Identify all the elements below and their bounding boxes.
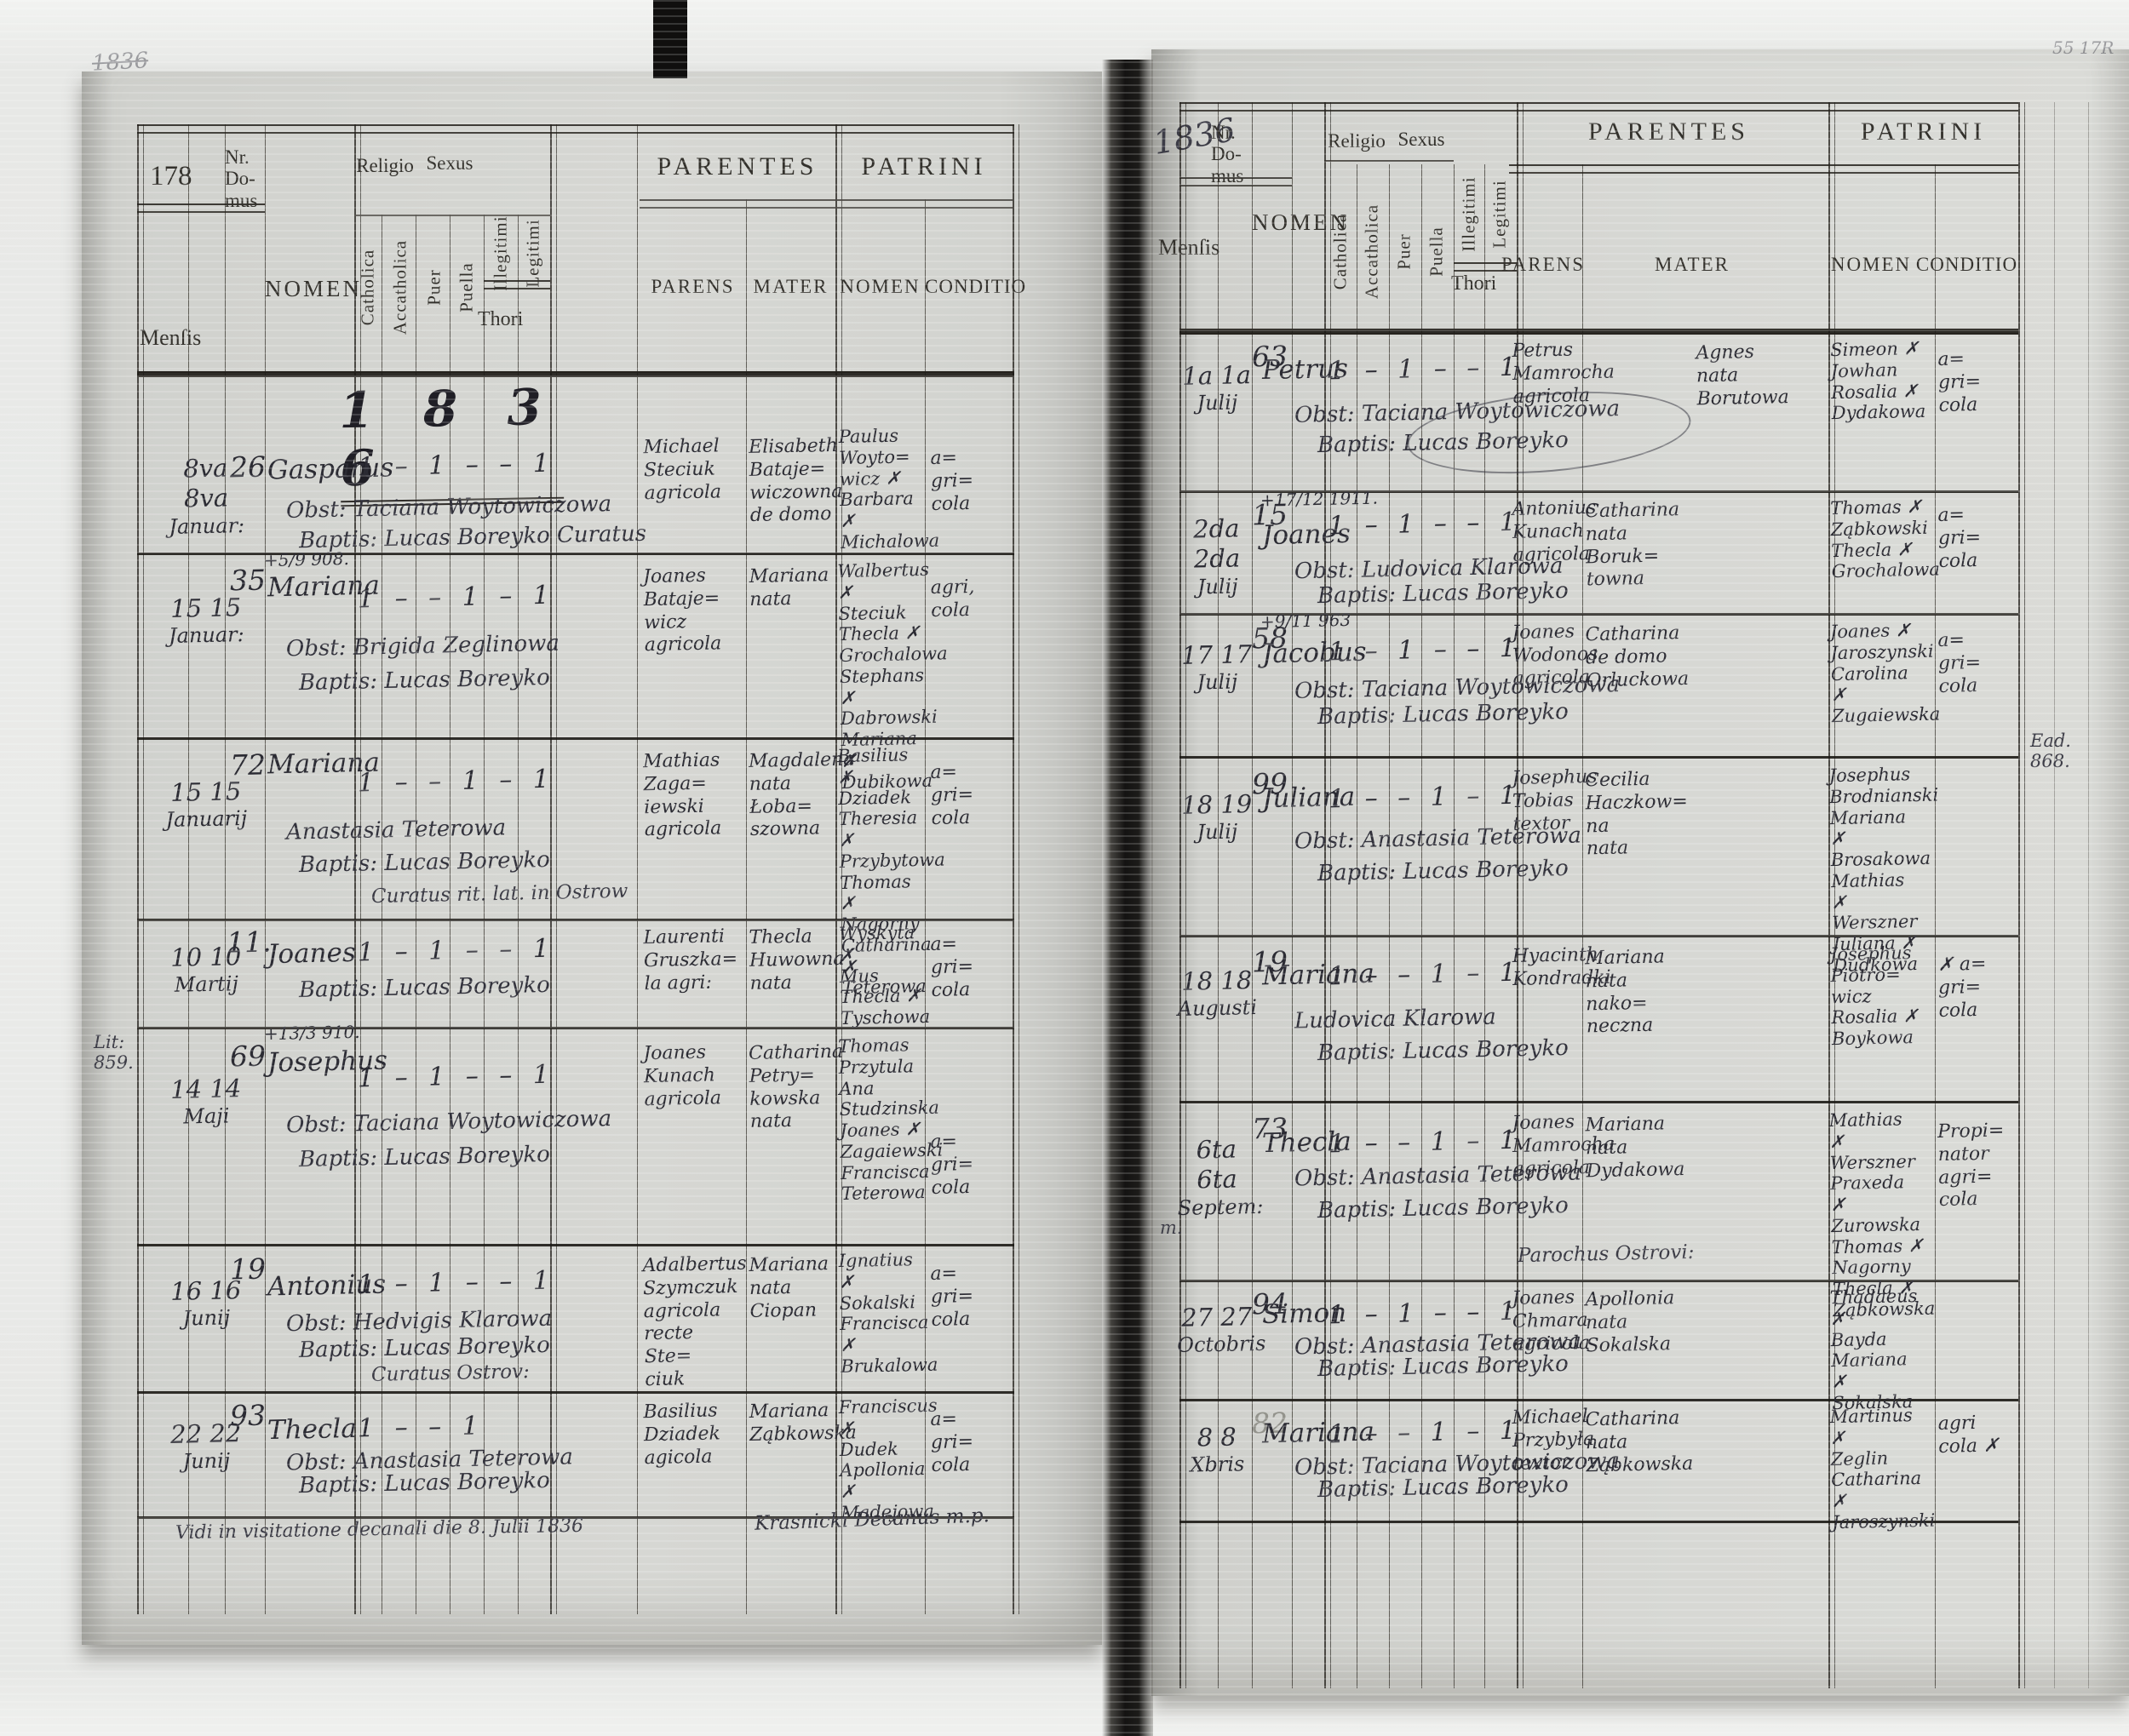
name-annotation: +5/9 908. [264,548,349,570]
conditio-cell: a= gri= cola [1937,347,2017,417]
entry-month: Xbris [1177,1452,1258,1478]
right-page: 1836 55 17R Nr. Do- [1151,49,2129,1696]
entry-month: Julij [1177,670,1258,696]
col-header-puer: Puer [1394,188,1415,316]
rule-line [1179,102,2018,112]
visitation-note: Vidi in visitatione decanali die 8. Juli… [175,1515,583,1544]
page-number: 178 [150,161,192,192]
entry-month: Januarij [158,806,255,834]
entry-day: 14 14 [158,1074,254,1106]
baptizans-line: Baptis: Lucas Boreyko [1317,1472,1569,1504]
rule-line [354,215,550,216]
obstetrix-line: Obst: Brigida Zeglinowa [286,631,560,663]
entry-date: 17 17Julij [1176,639,1257,696]
tally-marks: 1 – – 1 – 1 [358,765,554,799]
table-row: 8 8Xbris 82 Mariana Obst: Taciana Woytow… [1151,1401,2129,1522]
entry-date: 18 18Augusti [1176,965,1257,1023]
entry-month: Junij [158,1448,255,1475]
obstetrix-line: Obst: Taciana Woytowiczowa [286,1106,612,1140]
godparents-cell: Paulus Woyto= wicz ✗ Barbara ✗ Michalowa [838,425,926,553]
entry-day: 6ta 6ta [1176,1134,1257,1196]
obstetrix-line: Obst: Taciana Woytowiczowa [286,491,612,525]
entry-day: 18 19 [1176,789,1257,821]
conditio-cell: a= gri= cola [930,1130,1012,1200]
col-header-puella: Puella [1426,188,1448,316]
mother-cell: Elisabeth Bataje= wiczowna de domo [749,435,835,528]
col-header-accatholica: Accatholica [1362,188,1383,316]
table-row: 17 17Julij 58 +9/11 963 Jacobus Obst: Ta… [1151,615,2129,758]
godparents-cell: Thadaeus ✗ Bayda Mariana ✗ Sokalska [1829,1285,1925,1413]
conditio-cell: agri cola ✗ [1937,1412,2017,1459]
entry-month: Septem: [1177,1195,1258,1221]
table-row: 15 15Januarij 72 Mariana Anastasia Teter… [82,737,1102,919]
entry-month: Maji [158,1103,255,1131]
house-number: 72 [227,748,270,782]
baptizans-line: Baptis: Lucas Boreyko [1317,578,1569,610]
left-page: 1836 178 Nr. Do- mus Menſ [82,72,1102,1645]
baptizans-line: Baptis: Lucas Boreyko [299,847,550,879]
baptizans-line: Baptis: Lucas Boreyko [1317,856,1569,888]
father-cell: Antonius Kunach agricola [1512,497,1592,567]
table-row: 2da 2daJulij 15 +17/12 1911. Joanes Obst… [1151,492,2129,615]
col-header-patrini: PATRINI [1828,117,2018,146]
tally-marks: 1 – – 1 [358,1410,554,1445]
entry-date: 15 15Januarij [158,776,254,834]
obstetrix-line: Ludovica Klarowa [1294,1004,1496,1035]
entry-month: Octobris [1177,1332,1258,1359]
col-header-puella: Puella [456,224,478,352]
entry-date: 15 15Januar: [158,593,254,650]
house-number: 11. [227,925,270,960]
table-row: 18 18Augusti 19 Mariana Ludovica Klarowa… [1151,937,2129,1103]
mother-cell: Catharina nata Boruk= towna [1585,498,1697,592]
table-row: 16 16Junij 19 Antonius Obst: Hedvigis Kl… [82,1244,1102,1391]
tally-marks: 1 – 1 – – 1 [358,1059,554,1094]
godparents-cell: Joanes ✗ Jaroszynski Carolina ✗ Zugaiews… [1830,620,1926,727]
mother-cell: Agnes nata Borutowa [1696,341,1808,411]
entry-month: Augusti [1177,995,1258,1022]
conditio-cell: a= gri= cola [930,446,1012,516]
col-header-parentes: PARENTES [1509,117,1828,146]
register-scan: 1836 178 Nr. Do- mus Menſ [0,0,2129,1736]
father-cell: Hyacinth Kondradki [1512,944,1591,992]
tally-marks: 1 – 1 – – 1 [1328,633,1518,667]
col-header-puer: Puer [424,224,445,352]
baptizans-line: Baptis: Lucas Boreyko [299,972,550,1005]
tally-marks: 1 – 1 – – 1 [1328,507,1518,542]
father-cell: Michael Steciuk agricola [643,435,743,506]
entry-day: 8 8 [1176,1422,1257,1453]
table-row: 8va 8vaJanuar: 26 Gasparus Obst: Taciana… [82,376,1102,553]
tally-marks: 1 – 1 – – 1 [358,934,554,969]
col-header-nomen: NOMEN [1252,209,1330,236]
entry-day: 2da 2da [1176,513,1257,576]
entry-date: 14 14Maji [158,1074,254,1131]
baptizans-line: Baptis: Lucas Boreyko [1317,1035,1569,1068]
tally-marks: 1 – – 1 – 1 [1328,1126,1518,1160]
godparents-cell: Martinus ✗ Zeglin Catharina ✗ Jaroszynsk… [1829,1405,1925,1533]
baptizans-line: Baptis: Lucas Boreyko [1317,427,1569,460]
mother-cell: Mariana Ząbkowska [749,1399,835,1447]
table-row: 22 22Junij 93 Thecla Obst: Anastasia Tet… [82,1391,1102,1519]
godparents-cell: Franciscus ✗ Dudek Apollonia ✗ Madejowa [838,1395,926,1524]
tally-marks: 1 – – 1 – 1 [1328,781,1518,816]
godparents-cell: Wyskyta ✗ Mus Thecla ✗ Tyschowa [839,922,927,1029]
entry-month: Julij [1177,819,1258,845]
col-header-thori: Thori [1451,272,1496,295]
col-header-catholica: Catholica [358,224,379,352]
mother-cell: Catharina de domo Orluckowa [1585,622,1697,693]
col-header-sexus: Sexus [407,152,492,175]
tally-marks: 1 – 1 – – 1 [358,449,554,484]
tally-marks: 1 – 1 – – 1 [1328,352,1518,387]
conditio-cell: a= gri= cola [930,1263,1012,1332]
entry-date: 1a 1aJulij [1176,360,1257,417]
conditio-cell: Propi= nator agri= cola [1937,1120,2017,1212]
mother-cell: Apollonia nata Sokalska [1585,1287,1697,1358]
mother-cell: Catharina Petry= kowska nata [749,1041,835,1134]
baptizans-line-2: Curatus rit. lat. in Ostrow [371,879,628,908]
godparents-cell: Josephus Piotro= wicz Rosalia ✗ Boykowa [1830,942,1926,1050]
table-row: 1a 1aJulij 63 Petrus Obst: Taciana Woyto… [1151,332,2129,492]
entry-date: 6ta 6taSeptem: [1176,1134,1258,1221]
baptizans-line: Baptis: Lucas Boreyko [1317,699,1569,731]
entry-month: Januar: [158,622,255,650]
house-number: 35 [227,563,270,598]
entry-day: 18 18 [1176,965,1257,997]
house-number: 69 [227,1040,270,1074]
house-number: 19 [227,1252,270,1287]
corner-scribble: 55 17R [2052,37,2114,58]
godparents-cell: Thomas Przytula Ana Studzinska Joanes ✗ … [838,1034,927,1205]
entry-month: Julij [1177,574,1258,600]
table-row: 15 15Januar: 35 +5/9 908. Mariana Obst: … [82,553,1102,737]
table-row: 6ta 6taSeptem: 73 Thecla Obst: Anastasia… [1151,1103,2129,1281]
tally-marks: 1 – 1 – – 1 [1328,1296,1518,1331]
col-header-illegitimi: Illegitimi [491,190,512,318]
godparents-cell: Simeon ✗ Jowhan Rosalia ✗ Dydakowa [1830,337,1925,423]
col-header-patrini-nomen: NOMEN [1824,254,1918,276]
rule-line [1509,164,2018,174]
col-header-parens: PARENS [1496,254,1590,276]
book-gutter-shadow [1102,60,1153,1736]
tally-marks: 1 – – 1 – 1 [1328,1416,1518,1451]
conditio-cell: a= gri= cola [930,932,1012,1002]
col-header-mater: MATER [1641,254,1743,276]
conditio-cell: a= gri= cola [1937,628,2017,698]
conditio-cell: ✗ a= gri= cola [1937,953,2017,1023]
rule-line [1324,160,1454,162]
mother-cell: Magdalena nata Łoba= szowna [749,749,835,842]
col-header-patrini-nomen: NOMEN [835,276,925,298]
tally-marks: 1 – 1 – – 1 [358,1265,554,1300]
father-cell: Joanes Mamrocha agricola [1512,1111,1592,1181]
mother-cell: Mariana nata nako= neczna [1585,945,1697,1039]
father-cell: Mathias Zaga= iewski agricola [643,749,743,843]
mother-cell: Mariana nata [749,564,835,612]
col-header-accatholica: Accatholica [390,224,411,352]
baptism-name: Joanes [267,937,357,971]
mother-cell: Cecilia Haczkow= na nata [1585,767,1697,861]
col-header-patrini: PATRINI [835,152,1013,181]
col-header-sexus: Sexus [1379,129,1464,151]
col-header-thori: Thori [478,308,523,331]
mother-cell: Mariana nata Ciopan [749,1253,835,1324]
col-header-nr-domus: Nr. Do- mus [1211,122,1243,186]
col-header-illegitimi: Illegitimi [1459,151,1480,278]
col-header-legitimi: Legitimi [523,190,544,318]
entry-month: Julij [1177,390,1258,416]
baptizans-line: Baptis: Lucas Boreyko Curatus [299,521,647,555]
rule-line [137,124,1014,134]
conditio-cell: a= gri= cola [930,760,1012,830]
tally-marks: 1 – – 1 – 1 [358,580,554,615]
house-number: 26 [227,450,270,484]
table-row: 10 10Martij 11. Joanes Baptis: Lucas Bor… [82,919,1102,1027]
father-cell: Basilius Dziadek agicola [643,1399,743,1470]
mother-cell: Catharina nata Ząbkowska [1585,1407,1697,1477]
baptizans-line: Baptis: Lucas Boreyko [299,1468,550,1500]
col-header-conditio: CONDITIO [925,276,1013,298]
father-cell: Josephus Tobias textor [1512,766,1592,836]
name-annotation: +9/11 963 [1260,610,1351,633]
conditio-cell: agri, cola [930,576,1011,623]
baptizans-line-2: Parochus Ostrovi: [1518,1240,1695,1268]
col-header-mensis: Menſis [1158,235,1219,261]
father-cell: Laurenti Gruszka= la agri: [643,925,743,996]
entry-date: 8 8Xbris [1176,1422,1257,1479]
father-cell: Michael Przybyła textor [1512,1406,1592,1475]
col-header-nr-domus: Nr. Do- mus [225,146,257,211]
table-row: 18 19Julij 99 Juliana Obst: Anastasia Te… [1151,758,2129,937]
col-header-conditio: CONDITIO [1914,254,2020,276]
father-cell: Petrus Mamrocha agricola [1512,339,1592,409]
col-header-catholica: Catholica [1330,188,1351,316]
col-header-parentes: PARENTES [640,152,835,181]
entry-month: Martij [158,971,255,999]
baptizans-line-2: Curatus Ostrov: [371,1360,530,1387]
baptizans-line: Baptis: Lucas Boreyko [1317,1193,1569,1225]
col-header-mater: MATER [746,276,835,298]
godparents-cell: Thomas ✗ Ząbkowski Thecla ✗ Grochalowa [1830,496,1925,582]
father-cell: Joanes Kunach agricola [643,1041,743,1112]
col-header-nomen: NOMEN [265,276,354,302]
entry-day: 17 17 [1176,639,1257,671]
col-header-mensis: Menſis [140,325,201,351]
top-scribble: 1836 [91,48,149,76]
baptizans-line: Baptis: Lucas Boreyko [299,664,550,696]
baptizans-line: Baptis: Lucas Boreyko [299,1142,550,1174]
mother-cell: Thecla Huwowna nata [749,925,835,996]
col-header-parens: PARENS [640,276,746,298]
baptism-name: Thecla [267,1413,358,1447]
tally-marks: 1 – – 1 – 1 [1328,958,1518,993]
spine-clip [653,0,687,78]
table-row: 14 14Maji 69 +13/3 910. Josephus Obst: T… [82,1027,1102,1244]
father-cell: Joanes Chmara agricola [1512,1286,1592,1356]
conditio-cell: a= gri= cola [930,1407,1012,1477]
house-number: 93 [227,1398,270,1433]
entry-date: 2da 2daJulij [1176,513,1258,600]
obstetrix-line: Anastasia Teterowa [286,815,507,846]
rule-line [640,199,1014,209]
name-annotation: +13/3 910. [264,1022,360,1045]
entry-month: Junij [158,1305,255,1332]
godparents-cell: Ignatius ✗ Sokalski Francisca ✗ Brukalow… [838,1249,926,1378]
name-annotation: +17/12 1911. [1260,487,1378,510]
father-cell: Adalbertus Szymczuk agricola recte Ste= … [642,1253,743,1392]
father-cell: Joanes Wodonos agricola [1512,621,1592,690]
mother-cell: Mariana nata Dydakowa [1585,1112,1697,1183]
table-row: 27 27Octobris 94 Simon Obst: Anastasia T… [1151,1281,2129,1401]
father-cell: Joanes Bataje= wicz agricola [643,564,743,658]
conditio-cell: a= gri= cola [1937,503,2017,573]
entry-day: 1a 1a [1176,360,1257,392]
entry-date: 18 19Julij [1176,789,1257,846]
entry-date: 27 27Octobris [1176,1302,1257,1359]
entry-month: Januar: [158,513,255,541]
entry-day: 27 27 [1176,1302,1257,1333]
